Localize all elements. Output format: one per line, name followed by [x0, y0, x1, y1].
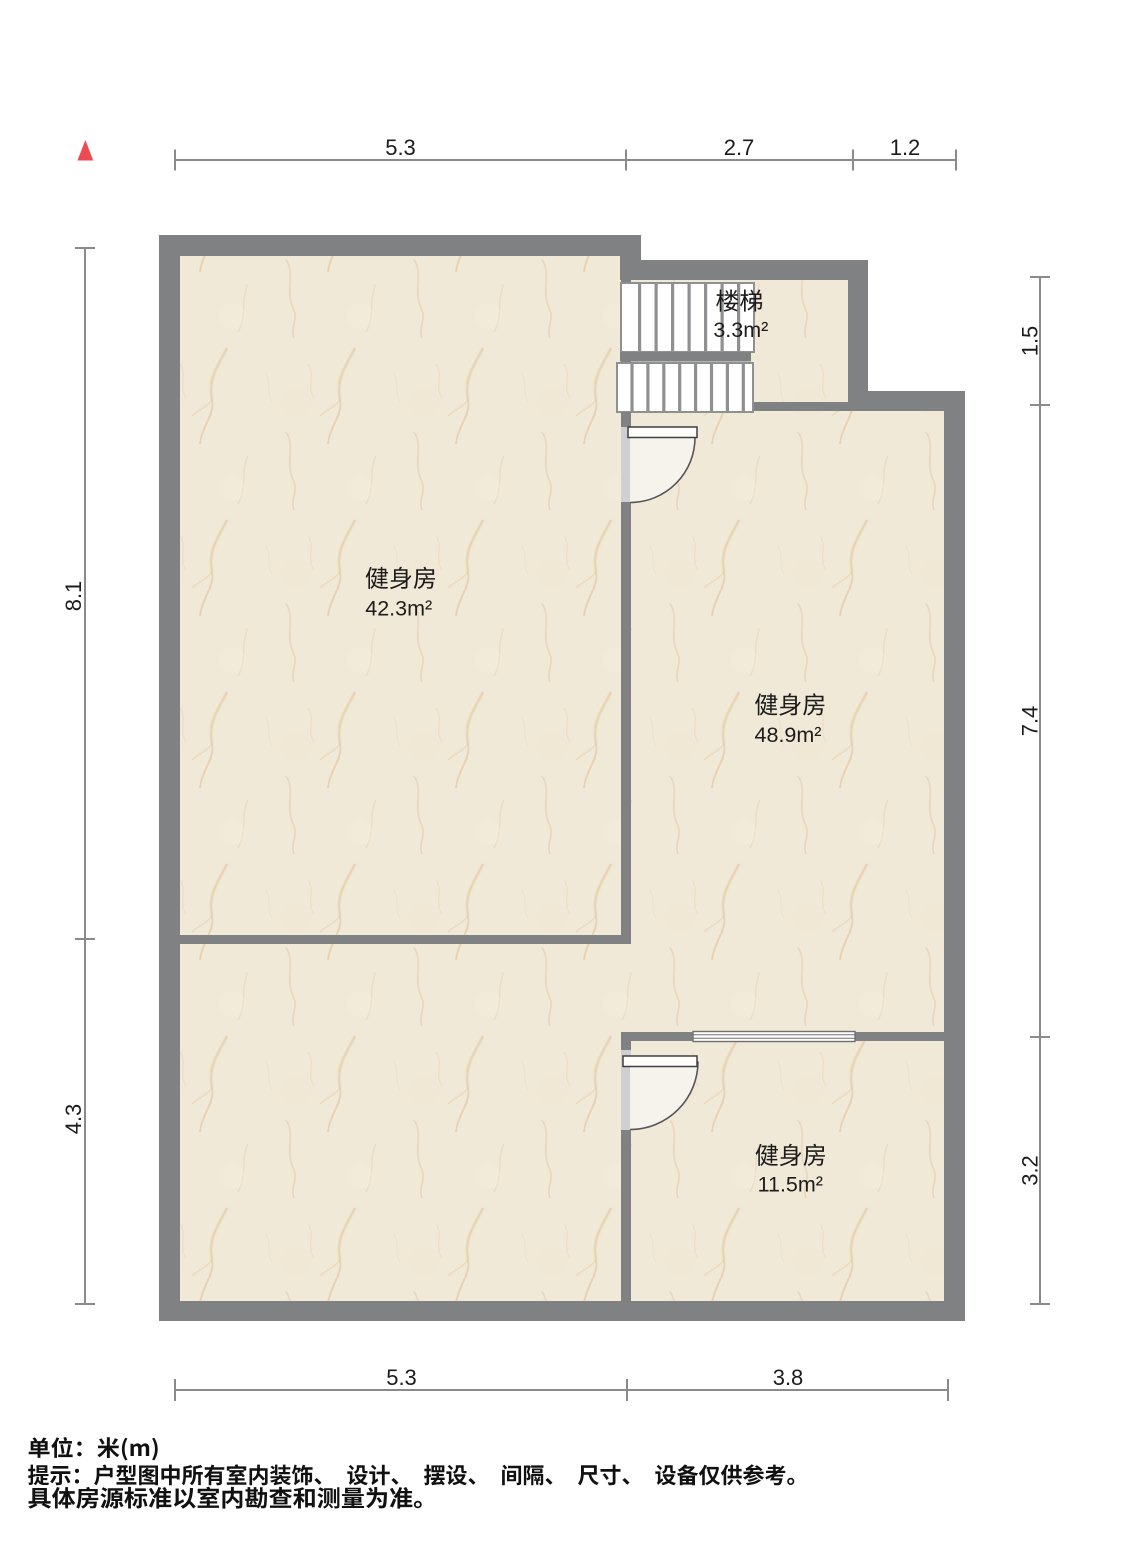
svg-text:2.7: 2.7 — [724, 135, 755, 160]
svg-text:3.2: 3.2 — [1018, 1155, 1043, 1186]
svg-text:8.1: 8.1 — [61, 581, 86, 612]
svg-text:3.8: 3.8 — [773, 1365, 804, 1390]
svg-text:1.5: 1.5 — [1018, 326, 1043, 357]
svg-text:4.3: 4.3 — [61, 1104, 86, 1135]
svg-text:3.3m²: 3.3m² — [713, 318, 768, 342]
svg-text:11.5m²: 11.5m² — [758, 1172, 823, 1196]
svg-text:5.3: 5.3 — [385, 135, 416, 160]
svg-text:1.2: 1.2 — [890, 135, 921, 160]
svg-text:5.3: 5.3 — [386, 1365, 417, 1390]
svg-text:7.4: 7.4 — [1018, 706, 1043, 737]
svg-text:48.9m²: 48.9m² — [755, 723, 822, 747]
svg-text:42.3m²: 42.3m² — [365, 597, 432, 621]
